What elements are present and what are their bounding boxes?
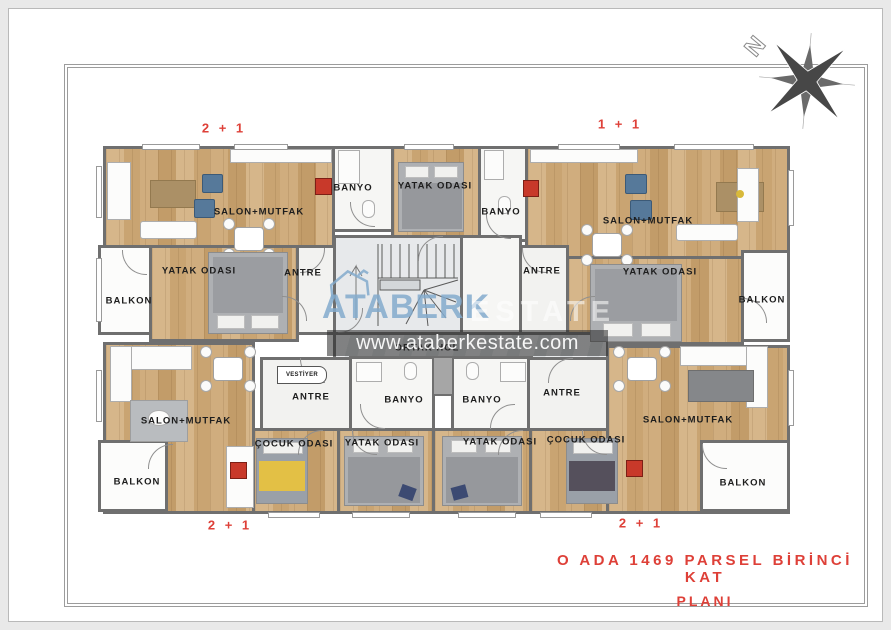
kitchen-counter <box>530 149 638 163</box>
window <box>458 512 516 518</box>
stove <box>230 462 247 479</box>
room-label-vestiyer: VESTİYER <box>286 372 318 378</box>
room-label-tr-yatak: YATAK ODASI <box>623 267 697 278</box>
bed <box>398 162 464 232</box>
window <box>404 144 454 150</box>
window <box>268 512 320 518</box>
room-label-br-salon: SALON+MUTFAK <box>643 415 733 426</box>
bed-pillow <box>217 315 245 329</box>
shower-tray <box>484 150 504 180</box>
room-label-bl-yatak: YATAK ODASI <box>345 438 419 449</box>
armchair <box>625 174 647 194</box>
unit-type-label-bottom-right: 2 + 1 <box>619 516 663 531</box>
window <box>674 144 754 150</box>
room-label-tl-salon: SALON+MUTFAK <box>214 207 304 218</box>
armchair <box>194 199 215 218</box>
window <box>142 144 200 150</box>
vent-shaft <box>432 356 454 396</box>
room-label-br-banyo: BANYO <box>462 395 501 406</box>
sink <box>500 362 526 382</box>
kitchen-island <box>688 370 754 402</box>
chaise <box>107 162 131 220</box>
window <box>788 170 794 226</box>
room-label-br-balkon: BALKON <box>720 478 767 489</box>
sofa <box>140 221 197 239</box>
bed-blanket <box>569 461 615 491</box>
window <box>788 370 794 426</box>
toilet <box>466 362 479 380</box>
shower-tray <box>338 150 360 184</box>
room-label-bl-balkon: BALKON <box>114 477 161 488</box>
window <box>558 144 620 150</box>
dining-set <box>581 224 633 266</box>
window <box>540 512 592 518</box>
sink <box>356 362 382 382</box>
room-label-tl-yatak: YATAK ODASI <box>162 266 236 277</box>
watermark-brand-secondary: ESTATE <box>470 296 616 329</box>
plan-title: O ADA 1469 PARSEL BİRİNCİ KAT PLANI <box>540 552 870 609</box>
sofa-corner <box>110 346 132 402</box>
vestiyer-closet: VESTİYER <box>277 366 327 384</box>
bed-blanket <box>259 461 305 491</box>
room-label-bl-banyo: BANYO <box>384 395 423 406</box>
room-label-tr-antre: ANTRE <box>523 266 561 277</box>
kitchen-counter <box>230 149 332 163</box>
unit-type-label-top-right: 1 + 1 <box>598 117 642 132</box>
room-label-tl-balkon: BALKON <box>106 296 153 307</box>
bed-pillow <box>405 166 429 178</box>
window <box>96 166 102 218</box>
room-label-bl-salon: SALON+MUTFAK <box>141 416 231 427</box>
stove <box>315 178 332 195</box>
stove <box>626 460 643 477</box>
room-label-br-yatak: YATAK ODASI <box>463 437 537 448</box>
dining-set <box>613 346 671 392</box>
watermark-band: www.ataberkestate.com <box>327 330 608 356</box>
room-label-tc-yatak: YATAK ODASI <box>398 181 472 192</box>
plan-title-line1: O ADA 1469 PARSEL BİRİNCİ KAT <box>540 552 870 586</box>
window <box>96 370 102 422</box>
round-table <box>736 190 744 198</box>
armchair <box>202 174 223 193</box>
bed-pillow <box>251 315 279 329</box>
plan-title-line2: PLANI <box>540 593 870 609</box>
unit-type-label-bottom-left: 2 + 1 <box>208 518 252 533</box>
room-label-tl-banyo: BANYO <box>333 183 372 194</box>
room-label-bl-cocuk: ÇOCUK ODASI <box>255 439 334 450</box>
room-label-tr-banyo: BANYO <box>481 207 520 218</box>
dining-set <box>200 346 256 392</box>
room-label-tl-antre: ANTRE <box>284 268 322 279</box>
window <box>352 512 410 518</box>
unit-type-label-top-left: 2 + 1 <box>202 121 246 136</box>
coffee-table-rug <box>150 180 196 208</box>
watermark-brand: ATABERK <box>322 288 490 327</box>
room-label-bl-antre: ANTRE <box>292 392 330 403</box>
bed-pillow <box>641 323 671 337</box>
room-label-br-cocuk: ÇOCUK ODASI <box>547 435 626 446</box>
floor-plan-page: { "title": { "line1": "O ADA 1469 PARSEL… <box>0 0 891 630</box>
room-label-tr-salon: SALON+MUTFAK <box>603 216 693 227</box>
watermark-url: www.ataberkestate.com <box>356 332 579 355</box>
bed <box>208 252 288 334</box>
balcony-rail <box>96 258 102 322</box>
toilet <box>404 362 417 380</box>
bed-pillow <box>434 166 458 178</box>
room-label-br-antre: ANTRE <box>543 388 581 399</box>
sofa <box>676 224 738 241</box>
compass-north-label: N <box>742 31 771 62</box>
window <box>234 144 288 150</box>
stove <box>523 180 539 197</box>
compass-icon: N <box>742 24 864 130</box>
room-label-tr-balkon: BALKON <box>739 295 786 306</box>
